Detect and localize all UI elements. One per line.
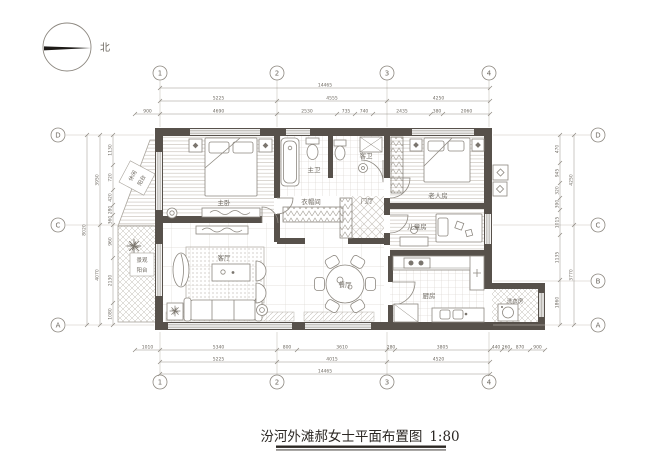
wall-kitchen-left-upper <box>388 256 393 282</box>
grid-bubble-bottom-2: 2 <box>270 375 284 389</box>
dim-label: 2060 <box>461 108 473 114</box>
dim-label: 4555 <box>326 95 338 101</box>
master-dresser <box>202 208 260 217</box>
wall-kitchen-left-lower <box>388 305 393 322</box>
dining-chair <box>366 278 376 291</box>
bathtub <box>281 138 299 186</box>
label-dining-room: 餐厅 <box>339 280 353 289</box>
window-balcony-upper <box>156 152 162 210</box>
grid-bubble-left-A: A <box>51 318 65 332</box>
wall-elder-kids <box>390 203 484 209</box>
dim-label: 320 <box>554 186 560 195</box>
label-kitchen: 厨房 <box>423 291 436 300</box>
master-bed <box>205 138 257 196</box>
dim-label: 4070 <box>94 269 100 281</box>
dim-label: 5225 <box>213 95 225 101</box>
svg-text:4: 4 <box>487 70 492 78</box>
dim-label: 4250 <box>568 174 574 186</box>
dim-label: 870 <box>516 344 525 350</box>
dim-label: 420 <box>107 193 113 202</box>
ac-units <box>493 165 508 196</box>
dim-label: 1080 <box>107 308 113 320</box>
svg-text:2: 2 <box>275 379 279 387</box>
grid-bubble-top-1: 1 <box>153 66 167 80</box>
fridge <box>394 304 418 322</box>
dim-chain-bottom_mid: 522540154520 <box>158 356 492 364</box>
label-master-bath: 主卫 <box>308 165 322 174</box>
dim-label: 4690 <box>213 108 225 114</box>
toilet-guest <box>334 140 346 160</box>
wall-foyer-stub <box>348 238 390 244</box>
north-needle-icon <box>44 46 91 50</box>
grid-bubble-bottom-1: 1 <box>153 375 167 389</box>
window-balcony-lower <box>156 244 162 296</box>
elder-bed <box>424 138 470 182</box>
dining-chair <box>315 278 325 291</box>
drawing-title-block: 汾河外滩郝女士平面布置图1:80 <box>260 428 459 450</box>
living-speaker <box>257 305 268 316</box>
dim-label: 8020 <box>81 224 87 236</box>
dim-label: 3805 <box>437 344 449 350</box>
kids-bed <box>436 214 482 242</box>
title-underline-thin <box>276 450 446 451</box>
dim-label: 2130 <box>107 275 113 287</box>
wall-grid2-upper <box>274 128 280 198</box>
wardrobe-elder <box>391 137 403 193</box>
grid-bubble-bottom-4: 4 <box>482 375 496 389</box>
dim-label: 960 <box>107 237 113 246</box>
master-stool <box>167 208 177 218</box>
dim-chain-left_mid: 39504070 <box>94 133 102 327</box>
kitchen-sink <box>432 308 484 322</box>
grid-bubble-top-4: 4 <box>482 66 496 80</box>
dim-label: 1010 <box>142 344 154 350</box>
svg-text:A: A <box>596 322 601 330</box>
svg-text:2: 2 <box>275 70 279 78</box>
wall-laundry-top <box>484 283 542 289</box>
dim-label: 440 <box>492 344 501 350</box>
dim-label: 280 <box>107 206 113 215</box>
window-elder-top <box>412 129 474 135</box>
wall-grid3-mid1 <box>384 198 390 215</box>
wardrobe-closet-right <box>340 198 352 238</box>
chaise-chair <box>173 253 189 287</box>
svg-text:1: 1 <box>158 70 162 78</box>
dim-label: 470 <box>554 145 560 154</box>
dim-label: 5225 <box>213 356 225 362</box>
svg-text:1: 1 <box>158 379 162 387</box>
label-living-room: 客厅 <box>218 253 232 262</box>
coffee-table <box>212 264 250 281</box>
living-console <box>196 226 248 234</box>
title-underline-thick <box>276 446 446 448</box>
dim-label: 900 <box>143 108 152 114</box>
north-label: 北 <box>100 42 110 54</box>
dim-label: 360 <box>107 216 113 225</box>
label-laundry: 洗衣房 <box>507 297 524 305</box>
svg-text:C: C <box>56 222 61 230</box>
dim-label: 280 <box>387 344 396 350</box>
window-dining-bottom <box>305 323 371 329</box>
svg-text:3: 3 <box>385 70 389 78</box>
dim-chain-bottom_inner: 1010534080036102803805440260870900 <box>133 344 547 352</box>
wardrobe-closet <box>283 207 343 222</box>
sink-guest <box>359 164 368 173</box>
dim-label: 5340 <box>213 344 225 350</box>
grid-bubble-left-D: D <box>51 128 65 142</box>
floor-plan-drawing: 北 <box>0 0 660 466</box>
dining-window-sill <box>304 312 374 321</box>
toilet-master <box>306 138 319 160</box>
drawing-scale: 1:80 <box>429 429 459 445</box>
dim-chain-right_mid: 42503770 <box>568 133 576 327</box>
living-plant <box>167 303 183 320</box>
label-elder-room: 老人房 <box>428 191 448 200</box>
grid-bubble-right-B: B <box>591 274 605 288</box>
label-closet: 衣帽间 <box>301 197 321 206</box>
grid-bubble-right-D: D <box>591 128 605 142</box>
grid-bubble-top-3: 3 <box>380 66 394 80</box>
dim-chain-bottom_total: 14465 <box>158 368 492 376</box>
floor-plan-page: 北 <box>0 0 660 466</box>
window-kids-right <box>485 214 491 244</box>
dim-label: 4250 <box>433 95 445 101</box>
dim-label: 900 <box>533 344 542 350</box>
drawing-title: 汾河外滩郝女士平面布置图1:80 <box>260 428 459 445</box>
shower <box>360 137 382 152</box>
dim-chain-right_inner: 470945320390101511351860 <box>554 133 562 327</box>
dim-chain-top_total: 14465 <box>158 82 492 90</box>
dim-label: 740 <box>360 108 369 114</box>
wall-closet-stub <box>277 238 305 244</box>
dim-label: 3770 <box>568 269 574 281</box>
svg-text:A: A <box>56 322 61 330</box>
dim-label: 720 <box>107 173 113 182</box>
dim-label: 1860 <box>554 297 560 309</box>
dim-chain-top_mid: 522545554250 <box>158 95 492 103</box>
svg-text:4: 4 <box>487 379 492 387</box>
dim-label: 14465 <box>318 82 332 88</box>
dim-chain-top_inner: 9004690253073574024353802060 <box>133 108 492 116</box>
label-master-bedroom: 主卧 <box>218 198 232 207</box>
svg-text:B: B <box>596 278 601 286</box>
north-compass: 北 <box>43 23 110 71</box>
dim-label: 380 <box>433 108 442 114</box>
window-living-bottom <box>168 323 292 329</box>
dim-label: 735 <box>342 108 351 114</box>
label-view-balcony: 景观 阳台 <box>130 253 154 276</box>
dim-label: 3950 <box>94 174 100 186</box>
dim-label: 1135 <box>554 252 560 264</box>
dim-label: 4520 <box>433 356 445 362</box>
wall-bath-divider <box>328 136 333 178</box>
dim-label: 4015 <box>326 356 338 362</box>
dim-label: 260 <box>502 344 511 350</box>
svg-text:阳台: 阳台 <box>136 266 148 274</box>
svg-text:3: 3 <box>385 379 389 387</box>
grid-bubble-left-C: C <box>51 218 65 232</box>
grid-bubble-right-A: A <box>591 318 605 332</box>
svg-text:D: D <box>55 132 60 140</box>
dim-chain-left_total: 8020 <box>81 133 89 327</box>
wall-grid3-upper <box>384 128 390 178</box>
dim-label: 800 <box>283 344 292 350</box>
grid-bubble-bottom-3: 3 <box>380 375 394 389</box>
window-bath-top <box>286 129 310 135</box>
wall-right <box>484 128 492 289</box>
dim-label: 3610 <box>336 344 348 350</box>
label-foyer: 门厅 <box>361 196 375 205</box>
sofa <box>184 298 262 321</box>
svg-text:D: D <box>595 132 600 140</box>
dim-label: 390 <box>554 200 560 209</box>
dim-label: 1130 <box>107 144 113 156</box>
grid-bubble-right-C: C <box>591 218 605 232</box>
dim-label: 2435 <box>396 108 408 114</box>
dim-label: 945 <box>554 169 560 178</box>
washing-machine <box>498 304 518 321</box>
window-master-top <box>190 129 260 135</box>
dim-label: 14465 <box>318 368 332 374</box>
kitchen-cabinet <box>470 256 484 290</box>
svg-text:景观: 景观 <box>136 257 148 264</box>
grid-bubble-top-2: 2 <box>270 66 284 80</box>
dim-chain-left_inner: 113072042028036096021301080 <box>107 133 115 327</box>
label-kids-room: 儿童房 <box>407 222 427 231</box>
label-guest-bath: 客卫 <box>360 151 374 160</box>
dim-label: 2530 <box>301 108 313 114</box>
svg-text:C: C <box>596 222 601 230</box>
wall-kids-kitchen <box>390 250 484 256</box>
window-laundry-right <box>539 293 544 317</box>
dim-label: 1015 <box>554 217 560 229</box>
